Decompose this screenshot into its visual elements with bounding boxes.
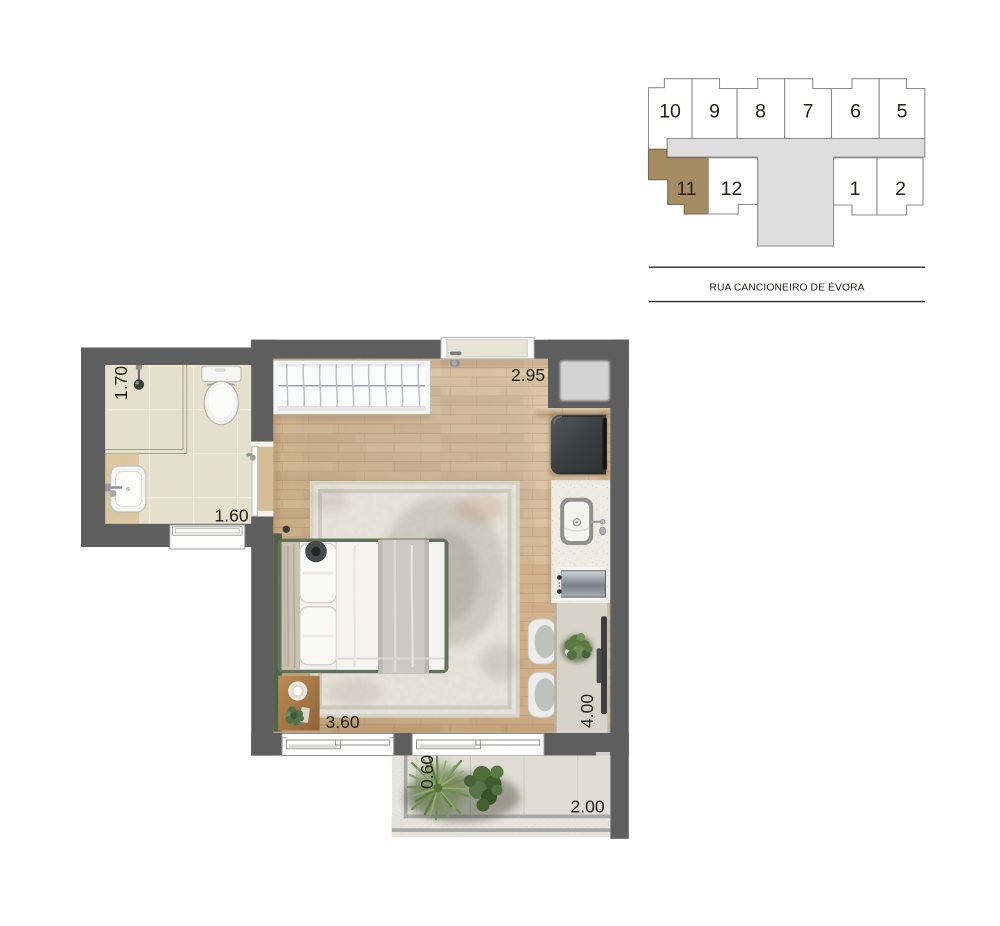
svg-text:RUA CANCIONEIRO DE ÉVORA: RUA CANCIONEIRO DE ÉVORA: [709, 281, 864, 294]
svg-text:2.00: 2.00: [571, 797, 605, 817]
svg-text:7: 7: [803, 101, 814, 123]
svg-text:12: 12: [721, 178, 743, 200]
svg-text:8: 8: [755, 101, 766, 123]
svg-text:3.60: 3.60: [326, 712, 360, 732]
svg-text:9: 9: [709, 101, 720, 123]
svg-text:1.60: 1.60: [215, 506, 249, 526]
svg-text:2.95: 2.95: [511, 365, 545, 385]
svg-text:5: 5: [897, 101, 908, 123]
svg-text:6: 6: [850, 101, 861, 123]
svg-text:1: 1: [850, 178, 861, 200]
svg-text:2: 2: [895, 178, 906, 200]
svg-text:0.60: 0.60: [417, 755, 437, 789]
svg-text:11: 11: [676, 178, 696, 200]
svg-text:10: 10: [659, 101, 681, 123]
svg-text:1.70: 1.70: [111, 366, 131, 400]
svg-text:4.00: 4.00: [577, 694, 597, 728]
